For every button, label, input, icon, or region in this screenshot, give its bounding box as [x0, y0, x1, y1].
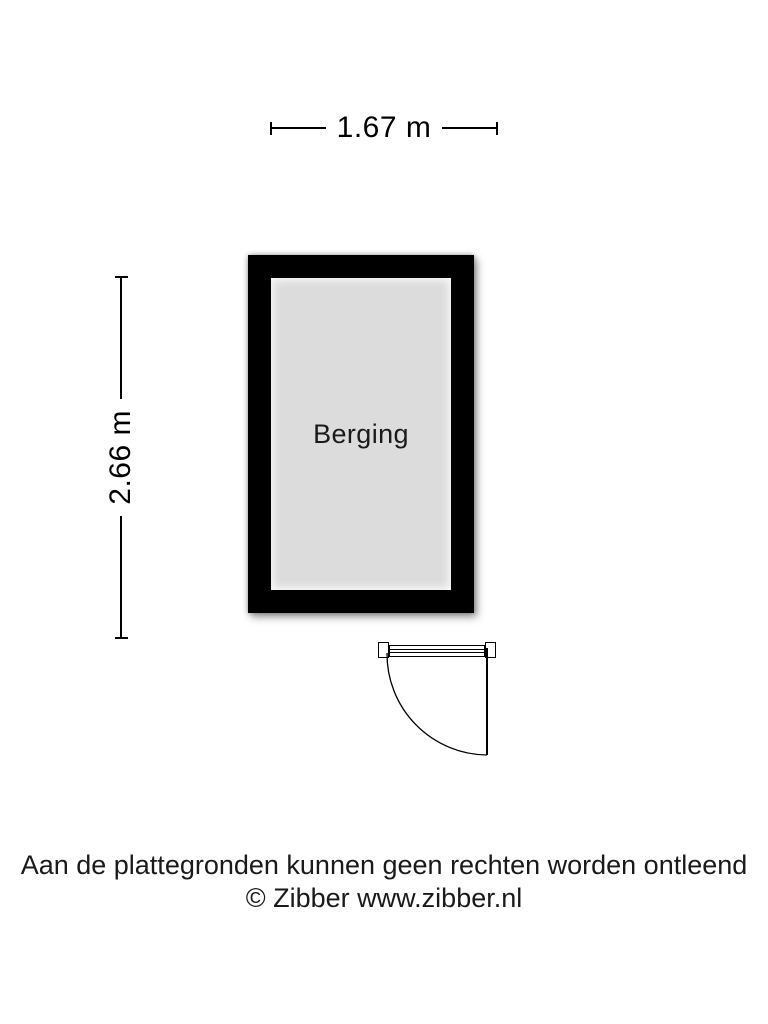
disclaimer-text: Aan de plattegronden kunnen geen rechten…: [0, 849, 768, 882]
door-swing-arc: [385, 653, 489, 757]
door-sill-line: [390, 649, 484, 650]
dimension-tick-bottom: [115, 637, 128, 639]
dimension-width: 1.67 m: [270, 106, 498, 150]
dimension-line-segment: [272, 127, 326, 129]
room-berging: Berging: [248, 255, 474, 613]
dimension-line-segment: [120, 516, 122, 637]
dimension-height: 2.66 m: [99, 276, 143, 639]
dimension-line-segment: [442, 127, 496, 129]
dimension-tick-right: [496, 122, 498, 135]
dimension-width-label: 1.67 m: [326, 111, 443, 145]
dimension-line-segment: [120, 278, 122, 399]
room-label: Berging: [313, 419, 409, 450]
footer: Aan de plattegronden kunnen geen rechten…: [0, 849, 768, 915]
dimension-height-label: 2.66 m: [104, 399, 138, 516]
copyright-text: © Zibber www.zibber.nl: [0, 882, 768, 915]
